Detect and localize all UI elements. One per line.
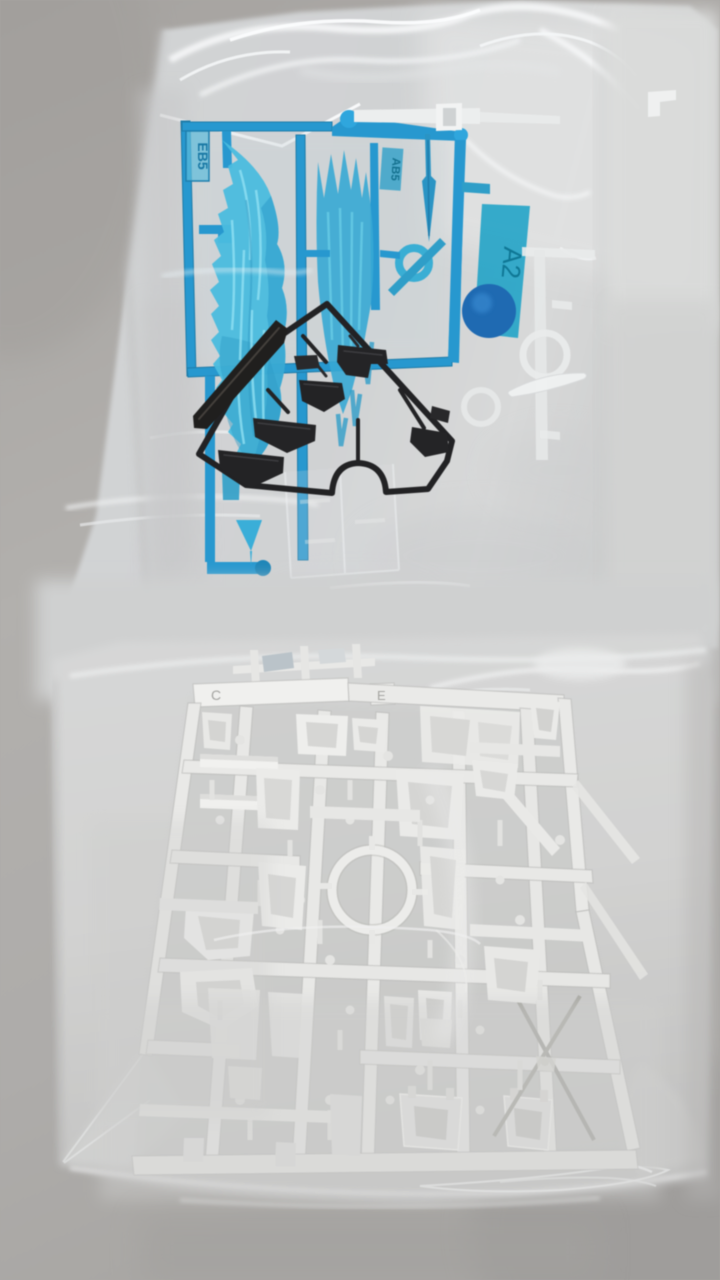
- svg-text:E: E: [377, 688, 386, 703]
- svg-text:AB5: AB5: [388, 157, 402, 181]
- svg-text:EB5: EB5: [195, 142, 211, 169]
- svg-text:C: C: [211, 687, 221, 703]
